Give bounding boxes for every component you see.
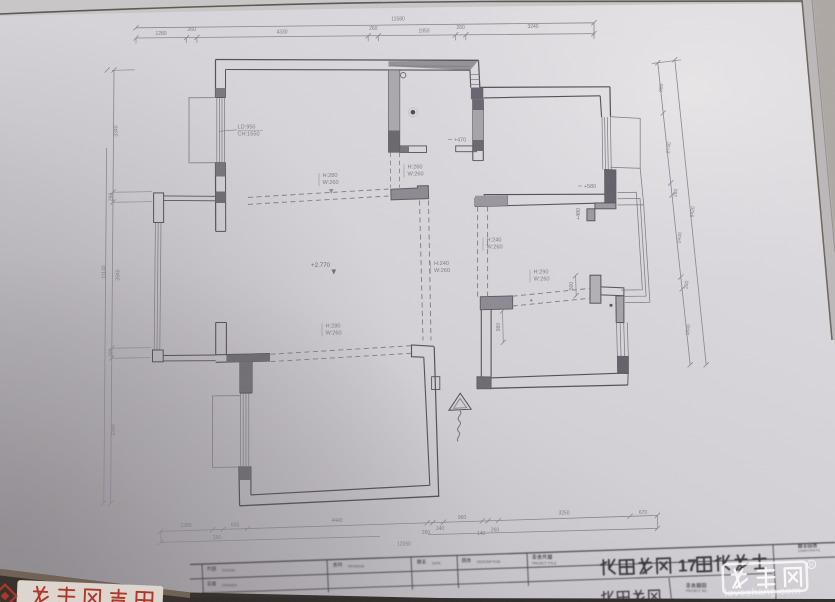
svg-text:R: R: [809, 562, 814, 569]
